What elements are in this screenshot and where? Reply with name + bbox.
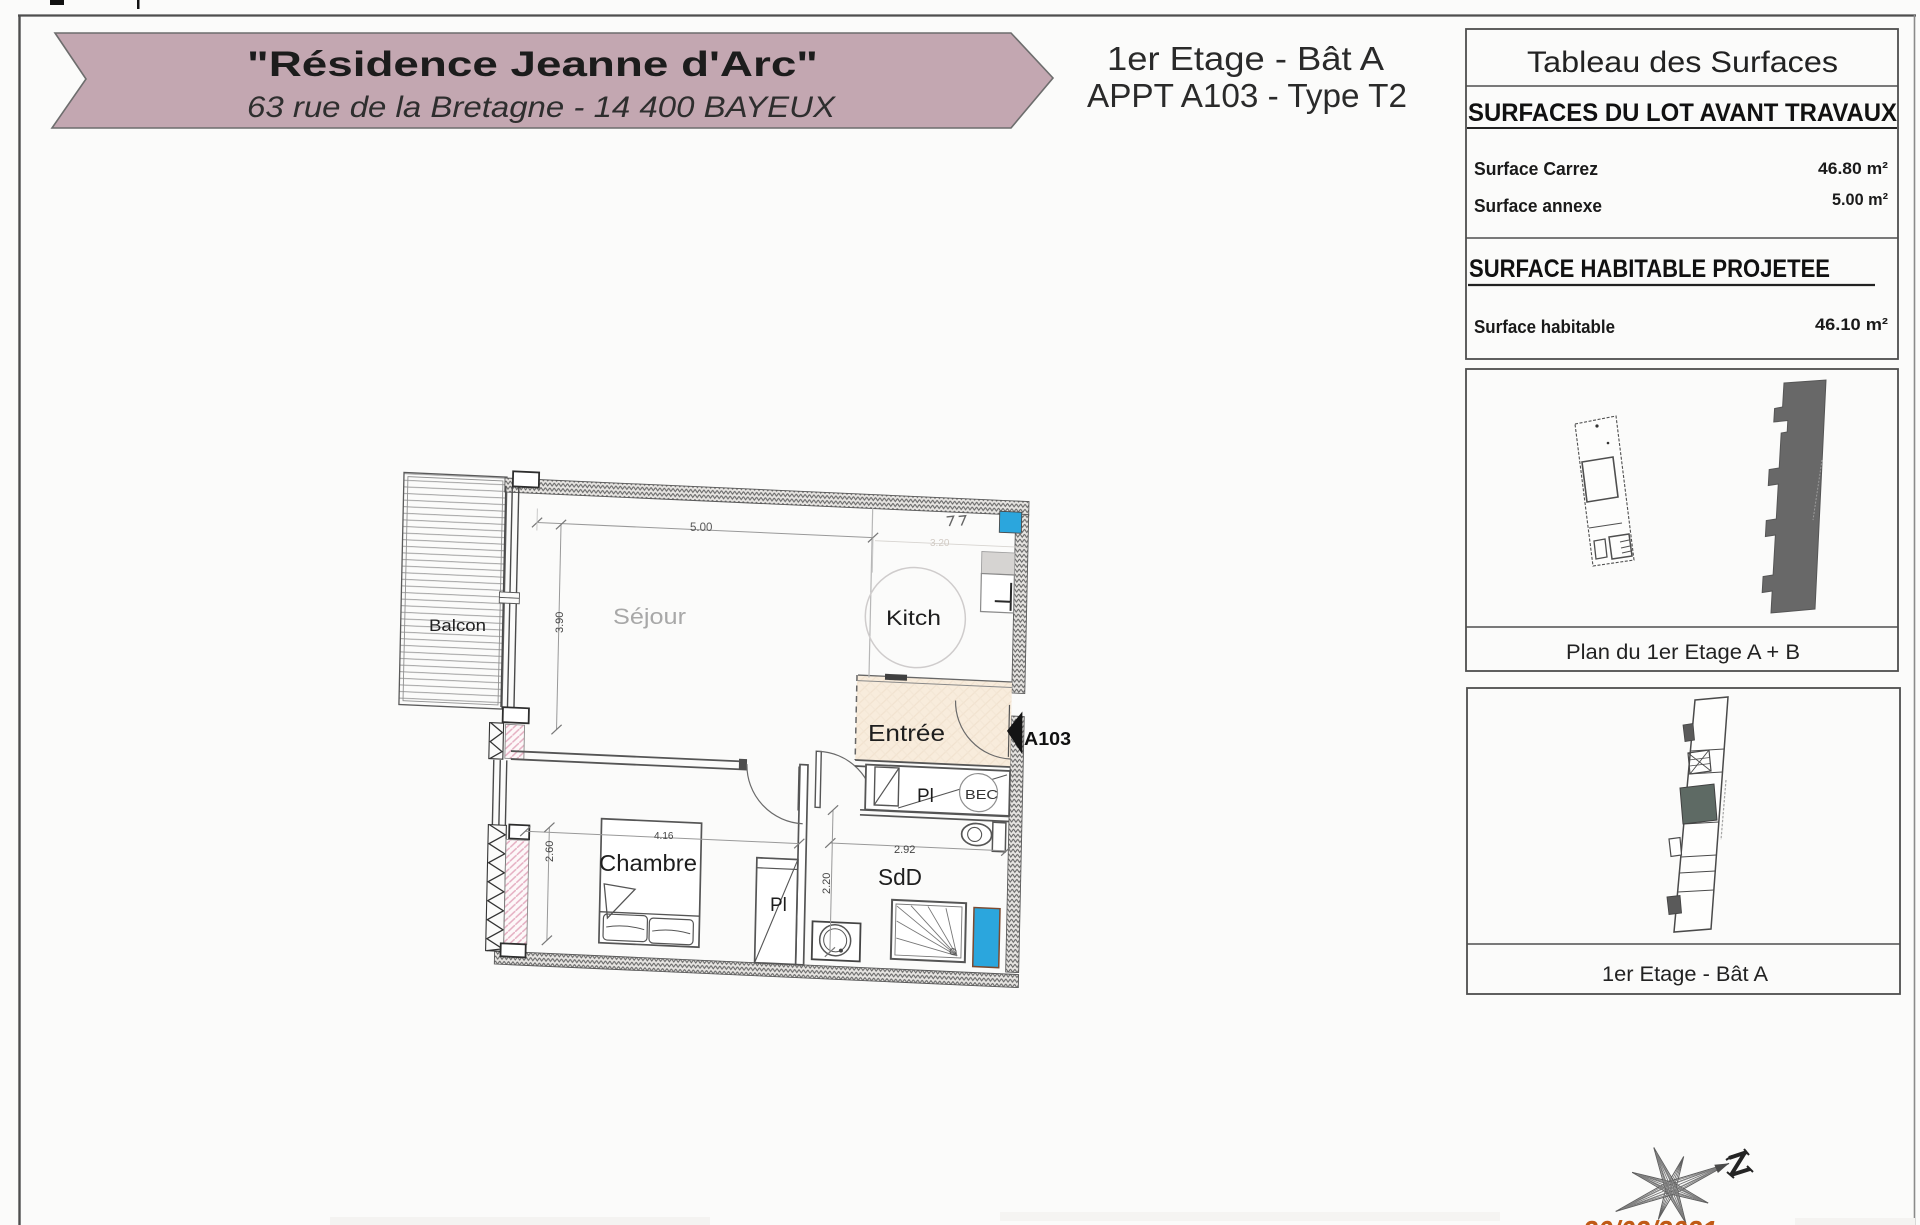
svg-text:APPT A103 - Type T2: APPT A103 - Type T2 — [1087, 77, 1407, 114]
svg-text:63 rue de la Bretagne - 14 400: 63 rue de la Bretagne - 14 400 BAYEUX — [247, 91, 836, 124]
svg-text:5.00 m²: 5.00 m² — [1832, 190, 1888, 209]
svg-text:46.80 m²: 46.80 m² — [1818, 159, 1888, 178]
svg-text:Surface Carrez: Surface Carrez — [1474, 159, 1598, 179]
svg-text:Tableau des Surfaces: Tableau des Surfaces — [1527, 46, 1838, 79]
svg-text:46.10 m²: 46.10 m² — [1815, 315, 1888, 334]
svg-text:1er Etage - Bât A: 1er Etage - Bât A — [1602, 963, 1768, 986]
svg-text:Surface annexe: Surface annexe — [1474, 196, 1602, 216]
svg-text:20/02/2021: 20/02/2021 — [1582, 1216, 1717, 1225]
svg-text:Entrée: Entrée — [868, 720, 945, 746]
svg-text:Balcon: Balcon — [429, 616, 486, 635]
svg-text:1er Etage - Bât A: 1er Etage - Bât A — [1107, 40, 1384, 77]
svg-text:Surface habitable: Surface habitable — [1474, 317, 1615, 337]
svg-text:5.00: 5.00 — [690, 522, 712, 534]
svg-text:SURFACES DU LOT AVANT TRAVAUX: SURFACES DU LOT AVANT TRAVAUX — [1468, 99, 1897, 127]
svg-text:3.20: 3.20 — [930, 538, 950, 549]
svg-text:"Résidence Jeanne d'Arc": "Résidence Jeanne d'Arc" — [247, 45, 818, 84]
svg-text:SURFACE HABITABLE PROJETEE: SURFACE HABITABLE PROJETEE — [1469, 255, 1830, 283]
svg-text:2.20: 2.20 — [821, 873, 833, 894]
svg-text:Plan du 1er Etage A + B: Plan du 1er Etage A + B — [1566, 641, 1800, 664]
svg-text:Pl: Pl — [917, 786, 934, 807]
svg-text:Séjour: Séjour — [613, 604, 687, 629]
svg-text:Pl: Pl — [770, 895, 787, 916]
svg-text:3.90: 3.90 — [554, 612, 566, 633]
svg-text:4.16: 4.16 — [654, 831, 674, 842]
svg-text:Kitch: Kitch — [886, 606, 941, 630]
svg-text:2.92: 2.92 — [894, 844, 915, 856]
svg-text:2.60: 2.60 — [544, 841, 556, 862]
svg-text:Chambre: Chambre — [599, 850, 697, 876]
svg-text:BEC: BEC — [965, 788, 998, 802]
svg-text:A103: A103 — [1024, 729, 1071, 749]
svg-text:SdD: SdD — [878, 864, 922, 890]
